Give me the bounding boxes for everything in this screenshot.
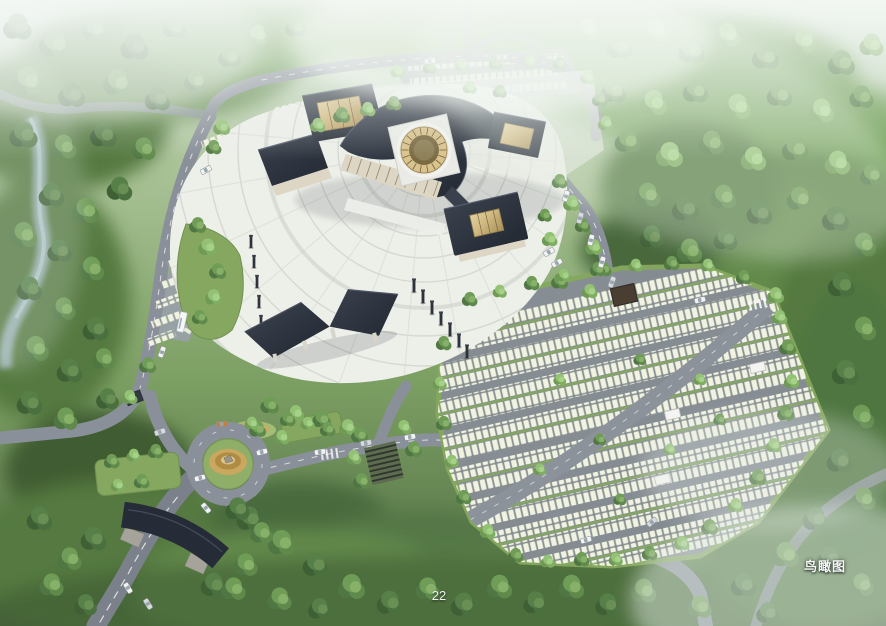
site-aerial-rendering [0, 0, 886, 626]
view-caption: 鸟瞰图 [804, 556, 846, 575]
page-number: 22 [424, 588, 454, 603]
rendering-canvas: 鸟瞰图 22 [0, 0, 886, 626]
roundabout [194, 430, 262, 498]
